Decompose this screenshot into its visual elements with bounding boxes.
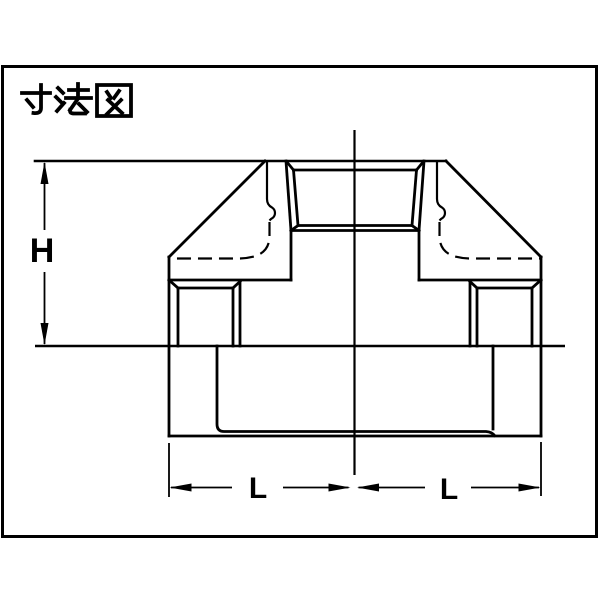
- l-left-label: L: [249, 472, 267, 505]
- h-dimension-label: H: [30, 232, 55, 270]
- dimension-diagram-canvas: 寸法図: [0, 0, 600, 600]
- dimension-drawing-page: 寸法図: [0, 0, 600, 600]
- l-right-label: L: [440, 473, 458, 506]
- page-title: 寸法図: [20, 81, 131, 122]
- drawing-frame-border: [3, 67, 597, 537]
